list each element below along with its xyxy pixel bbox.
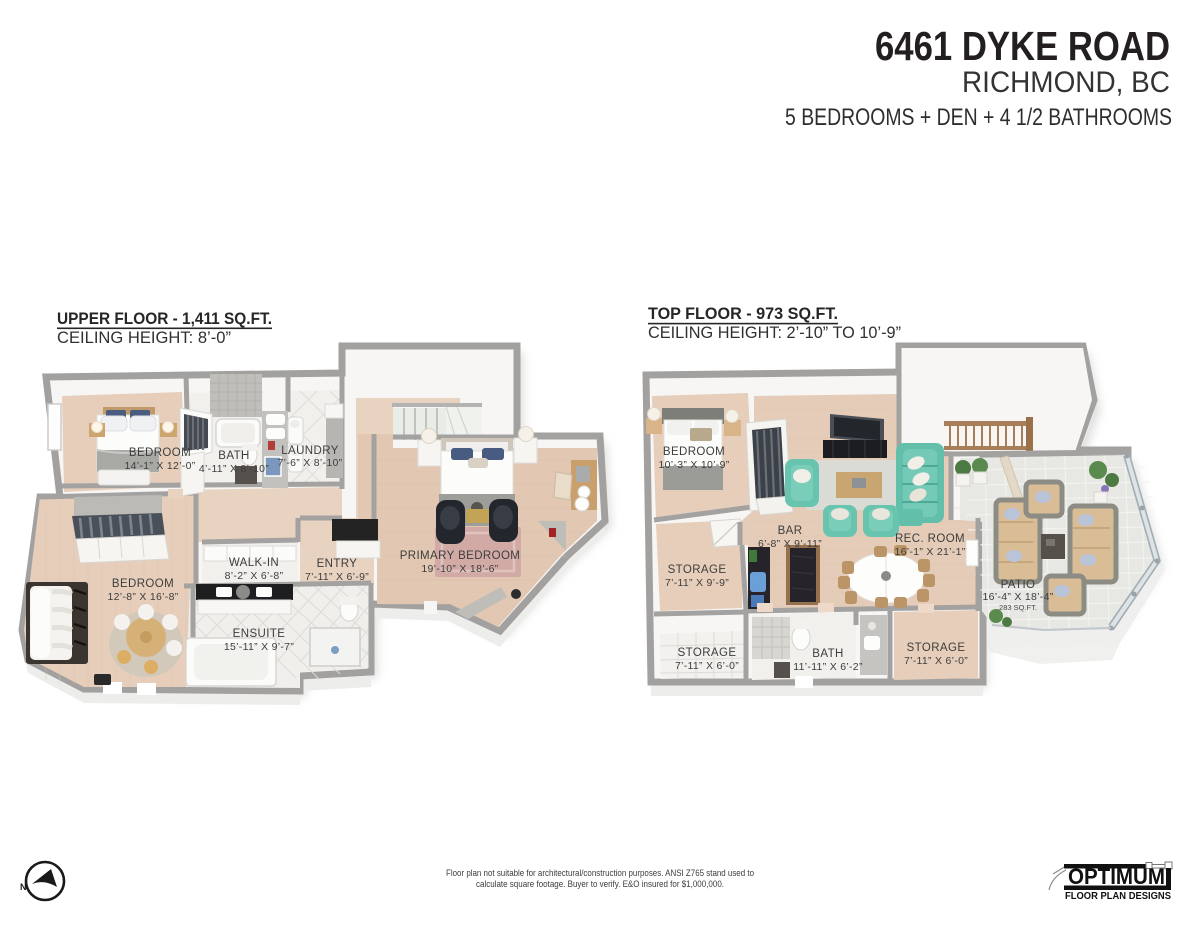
svg-text:FLOOR PLAN DESIGNS: FLOOR PLAN DESIGNS	[1065, 890, 1171, 902]
svg-text:BEDROOM: BEDROOM	[112, 578, 174, 590]
svg-text:11’-11” X 6’-2”: 11’-11” X 6’-2”	[793, 661, 863, 673]
svg-text:LAUNDRY: LAUNDRY	[281, 445, 339, 457]
svg-text:RICHMOND, BC: RICHMOND, BC	[962, 66, 1170, 99]
svg-text:7’-11” X 9’-9”: 7’-11” X 9’-9”	[665, 577, 729, 589]
svg-text:WALK-IN: WALK-IN	[229, 557, 279, 569]
svg-text:16’-4” X 18’-4”: 16’-4” X 18’-4”	[982, 591, 1053, 603]
svg-text:283 SQ.FT.: 283 SQ.FT.	[999, 603, 1037, 612]
svg-text:14’-1” X 12’-0”: 14’-1” X 12’-0”	[124, 460, 195, 472]
svg-text:TOP FLOOR - 973 SQ.FT.: TOP FLOOR - 973 SQ.FT.	[648, 304, 838, 323]
svg-text:PRIMARY BEDROOM: PRIMARY BEDROOM	[400, 550, 521, 562]
svg-text:STORAGE: STORAGE	[907, 642, 966, 654]
svg-text:STORAGE: STORAGE	[668, 564, 727, 576]
svg-text:7’-11” X 6’-0”: 7’-11” X 6’-0”	[675, 660, 739, 672]
svg-text:7’-6” X 8’-10”: 7’-6” X 8’-10”	[278, 457, 343, 469]
svg-text:19’-10” X 18’-6”: 19’-10” X 18’-6”	[421, 563, 498, 575]
svg-text:BEDROOM: BEDROOM	[129, 447, 191, 459]
svg-text:calculate square footage. Buye: calculate square footage. Buyer to verif…	[476, 879, 724, 889]
svg-text:CEILING HEIGHT: 2’-10” TO 10’-: CEILING HEIGHT: 2’-10” TO 10’-9”	[648, 323, 901, 342]
svg-text:Floor plan not suitable for ar: Floor plan not suitable for architectura…	[446, 868, 754, 878]
svg-text:PATIO: PATIO	[1001, 579, 1036, 591]
svg-text:7’-11” X 6’-0”: 7’-11” X 6’-0”	[904, 655, 968, 667]
svg-text:5 BEDROOMS + DEN + 4 1/2 BATHR: 5 BEDROOMS + DEN + 4 1/2 BATHROOMS	[785, 104, 1172, 131]
svg-text:STORAGE: STORAGE	[678, 647, 737, 659]
svg-text:10’-3” X 10’-9”: 10’-3” X 10’-9”	[658, 459, 729, 471]
svg-text:6461 DYKE ROAD: 6461 DYKE ROAD	[875, 23, 1170, 69]
svg-text:7’-11” X 6’-9”: 7’-11” X 6’-9”	[305, 571, 369, 583]
svg-text:ENSUITE: ENSUITE	[233, 628, 286, 640]
svg-text:ENTRY: ENTRY	[317, 558, 358, 570]
svg-text:BEDROOM: BEDROOM	[663, 446, 725, 458]
svg-text:CEILING HEIGHT: 8’-0”: CEILING HEIGHT: 8’-0”	[57, 328, 231, 347]
svg-text:UPPER FLOOR - 1,411 SQ.FT.: UPPER FLOOR - 1,411 SQ.FT.	[57, 309, 272, 328]
svg-text:4’-11” X 8’-10”: 4’-11” X 8’-10”	[199, 463, 269, 475]
svg-text:N: N	[20, 882, 27, 892]
svg-text:OPTIMUM: OPTIMUM	[1068, 864, 1165, 889]
svg-text:REC. ROOM: REC. ROOM	[895, 533, 965, 545]
svg-text:16’-1” X 21’-1”: 16’-1” X 21’-1”	[894, 546, 965, 558]
svg-text:BATH: BATH	[218, 450, 249, 462]
svg-text:6’-8” X 9’-11”: 6’-8” X 9’-11”	[758, 538, 822, 550]
svg-text:12’-8” X 16’-8”: 12’-8” X 16’-8”	[107, 591, 178, 603]
svg-text:15’-11” X 9’-7”: 15’-11” X 9’-7”	[224, 641, 294, 653]
svg-text:BAR: BAR	[778, 525, 803, 537]
svg-text:BATH: BATH	[812, 648, 843, 660]
svg-text:8’-2” X 6’-8”: 8’-2” X 6’-8”	[225, 570, 284, 582]
